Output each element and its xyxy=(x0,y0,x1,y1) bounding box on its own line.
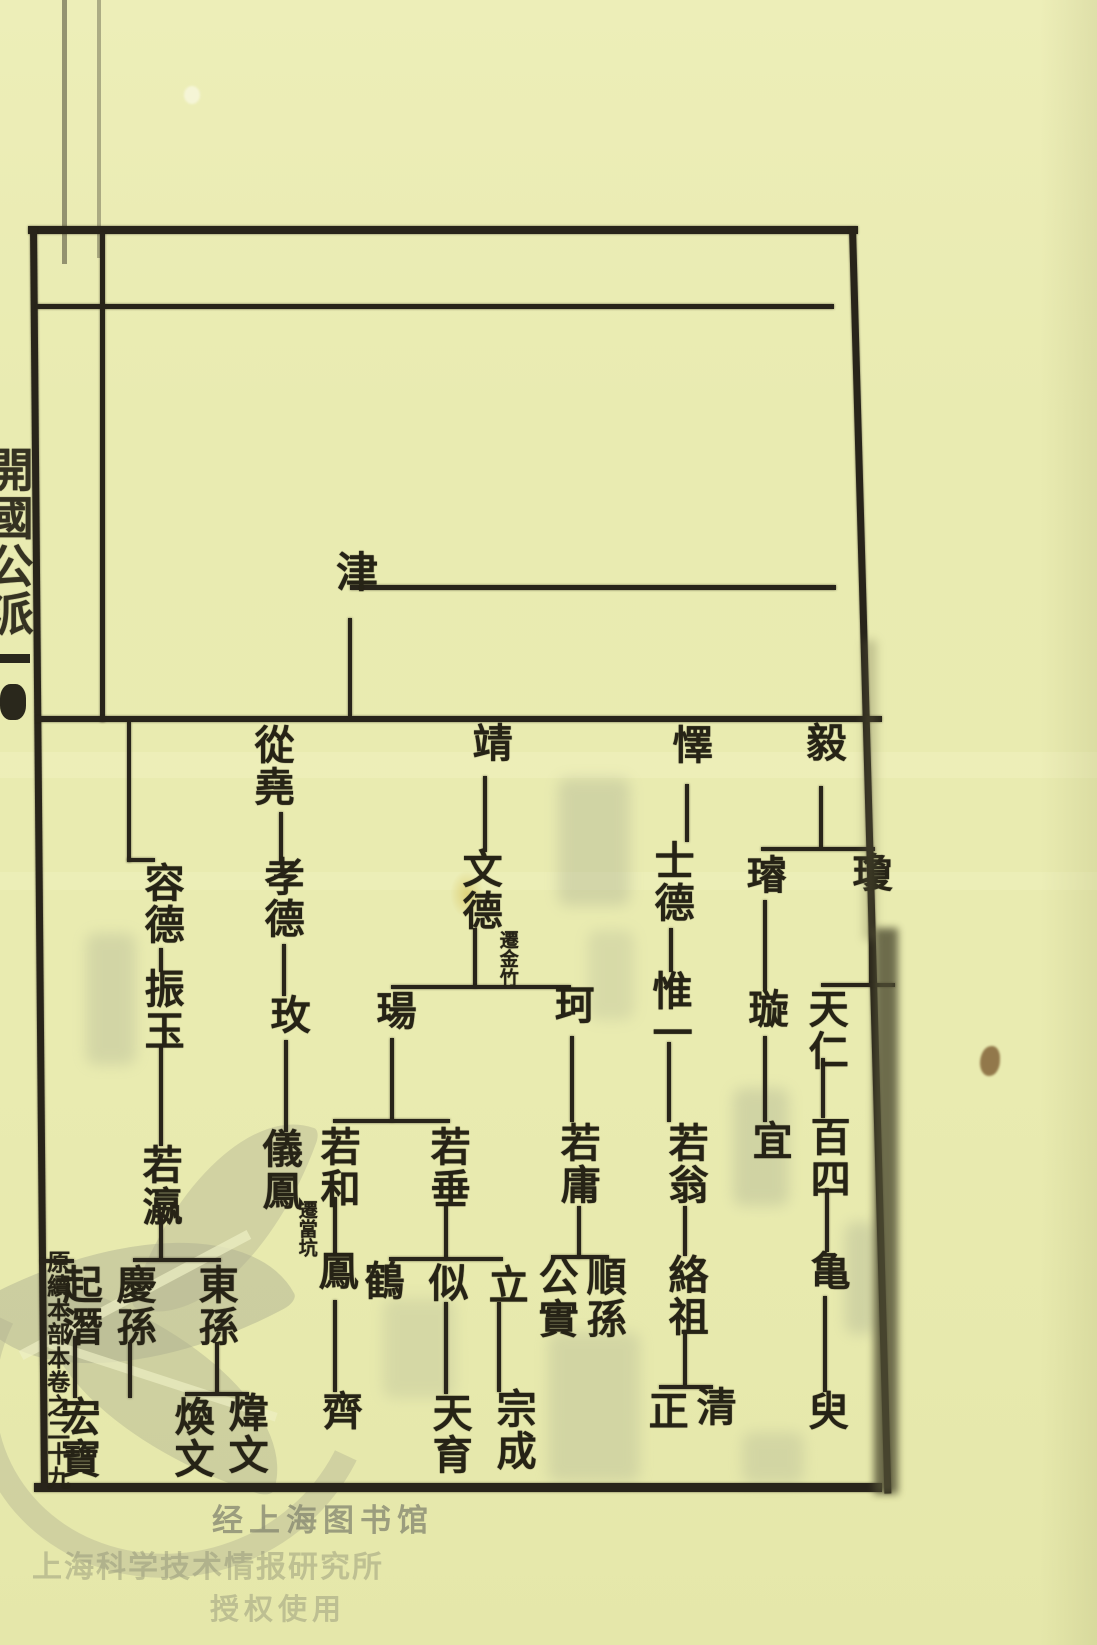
mei-descent xyxy=(284,1040,288,1132)
xuanspin-descent xyxy=(763,1036,767,1122)
yigong-descent xyxy=(819,786,823,848)
tree-node-ruoying: 若瀛 xyxy=(138,1144,180,1228)
bleedthrough-ghost xyxy=(548,1332,640,1482)
qingsun-dongsun-bracket xyxy=(133,1258,221,1262)
yiduke-descent xyxy=(685,784,689,842)
page-edge-shadow-upper xyxy=(864,640,876,940)
tree-node-zhenyu: 振玉 xyxy=(140,968,182,1052)
library-watermark-line1: 经上海图书馆 xyxy=(212,1495,434,1540)
jin-generation-rule xyxy=(350,585,836,590)
ruoweng-descent xyxy=(683,1206,687,1256)
brown-speck xyxy=(980,1046,1000,1076)
tree-node-ruohe: 若和 xyxy=(316,1126,358,1210)
tree-node-ke: 珂 xyxy=(550,984,592,1026)
library-watermark-line3: 授权使用 xyxy=(210,1586,346,1628)
tree-node-gui: 亀 xyxy=(806,1250,848,1292)
xiaode-descent xyxy=(282,944,286,996)
jing-descent xyxy=(483,776,487,852)
paper-lighter-band xyxy=(0,752,1097,778)
spine-ink-bar xyxy=(0,654,30,663)
tree-node-si: 似 xyxy=(424,1262,466,1304)
tree-node-jin: 津 xyxy=(332,550,376,594)
tree-node-wende: 文德 xyxy=(458,848,500,932)
dongsun-descent xyxy=(215,1342,219,1394)
tree-node-dongsun: 東孫 xyxy=(194,1264,236,1348)
tree-node-luozu: 絡祖 xyxy=(664,1254,706,1338)
jin-descent xyxy=(348,618,352,716)
paper-right-edge-shading xyxy=(1040,0,1097,1645)
tree-node-congyao: 從堯 xyxy=(250,724,292,808)
ruohe-ruochui-bracket xyxy=(333,1119,450,1123)
tree-node-qi: 齊 xyxy=(318,1390,360,1432)
bleedthrough-ghost xyxy=(86,933,136,1065)
he-si-li-bracket xyxy=(389,1257,503,1261)
tree-node-shide: 士德 xyxy=(650,840,692,924)
ke-descent xyxy=(570,1036,574,1122)
tree-node-baisi: 百四 xyxy=(806,1116,848,1200)
ruoyong-descent xyxy=(577,1206,581,1258)
tree-node-yi-proper: 宜 xyxy=(748,1120,790,1162)
border-top xyxy=(28,226,858,234)
tree-node-he: 鶴 xyxy=(360,1260,402,1302)
tree-node-yang: 瑒 xyxy=(372,990,414,1032)
tree-node-ruoweng: 若翁 xyxy=(664,1122,706,1206)
bleedthrough-ghost xyxy=(558,778,630,906)
top-section-rule xyxy=(36,304,834,309)
qingsun-tail xyxy=(128,1342,132,1398)
spine-ink-blob xyxy=(0,684,26,720)
tree-node-qing: 清 xyxy=(692,1386,734,1428)
gui-descent xyxy=(823,1296,827,1392)
ruochui-descent xyxy=(444,1202,448,1260)
tree-node-rongde: 容德 xyxy=(140,862,182,946)
si-descent xyxy=(444,1302,448,1394)
tree-node-zheng: 正 xyxy=(644,1390,686,1432)
bleedthrough-ghost xyxy=(742,1432,804,1484)
li-descent xyxy=(497,1302,501,1392)
tree-node-ruochui: 若垂 xyxy=(426,1126,468,1210)
gen2-rule xyxy=(36,716,882,722)
border-bottom xyxy=(34,1483,882,1492)
tree-node-zongcheng: 宗成 xyxy=(492,1388,534,1472)
tree-note-yifeng: 遷當坑 xyxy=(296,1200,316,1257)
tree-node-li: 立 xyxy=(484,1264,526,1306)
tree-node-feng: 鳳 xyxy=(314,1250,356,1292)
library-watermark-line2: 上海科学技术情报研究所 xyxy=(32,1542,384,1586)
yang-ke-branch xyxy=(391,985,571,989)
luozu-descent xyxy=(683,1330,687,1386)
page-edge-shadow xyxy=(874,928,898,1494)
tree-node-xiaode: 孝德 xyxy=(260,856,302,940)
tree-note-wende: 遷金竹 xyxy=(497,930,517,987)
tree-node-shunsun: 順孫 xyxy=(582,1256,624,1340)
tree-node-mei: 玫 xyxy=(266,994,308,1036)
weiyi-descent xyxy=(667,1042,671,1122)
margin-volume-label: 原續本部本卷之二十九 xyxy=(44,1250,68,1490)
tree-node-yu: 臾 xyxy=(804,1390,846,1432)
zhenyu-descent xyxy=(159,1046,163,1146)
tree-node-jing: 靖 xyxy=(468,722,510,764)
xuan-qiong-bracket xyxy=(761,847,875,851)
spine-title: 開國公派 xyxy=(0,446,32,638)
tree-node-weiwen: 煒文 xyxy=(224,1392,266,1476)
tree-node-yifeng: 儀鳳 xyxy=(258,1128,300,1212)
tree-node-gongshi: 公實 xyxy=(534,1256,576,1340)
tree-node-huanwen: 煥文 xyxy=(170,1396,212,1480)
scanned-genealogy-page: { "page": { "spine_label": "開國公派", "marg… xyxy=(0,0,1097,1645)
shide-descent xyxy=(669,928,673,972)
feng-descent xyxy=(333,1300,337,1392)
tree-node-xuan-jade: 璿 xyxy=(742,854,784,896)
white-speck xyxy=(184,86,200,104)
congyao-descent xyxy=(279,812,283,862)
tree-node-xuan-spin: 璇 xyxy=(744,988,786,1030)
tree-node-tianren: 天仁 xyxy=(804,988,846,1072)
tree-node-qingsun: 慶孫 xyxy=(112,1264,154,1348)
rongde-elbow-v xyxy=(127,722,131,862)
spine-rule-artifact xyxy=(97,0,101,258)
xuanjade-descent xyxy=(763,900,767,990)
tree-node-tianyu: 天育 xyxy=(428,1392,470,1476)
tree-node-ruoyong: 若庸 xyxy=(556,1122,598,1206)
tree-node-yi-duke: 懌 xyxy=(668,724,710,766)
spine-rule-artifact xyxy=(62,0,67,264)
yang-descent xyxy=(390,1038,394,1122)
wende-tail xyxy=(473,928,477,988)
tree-node-yi-gong: 毅 xyxy=(802,722,844,764)
tree-node-weiyi: 惟一 xyxy=(648,970,690,1054)
